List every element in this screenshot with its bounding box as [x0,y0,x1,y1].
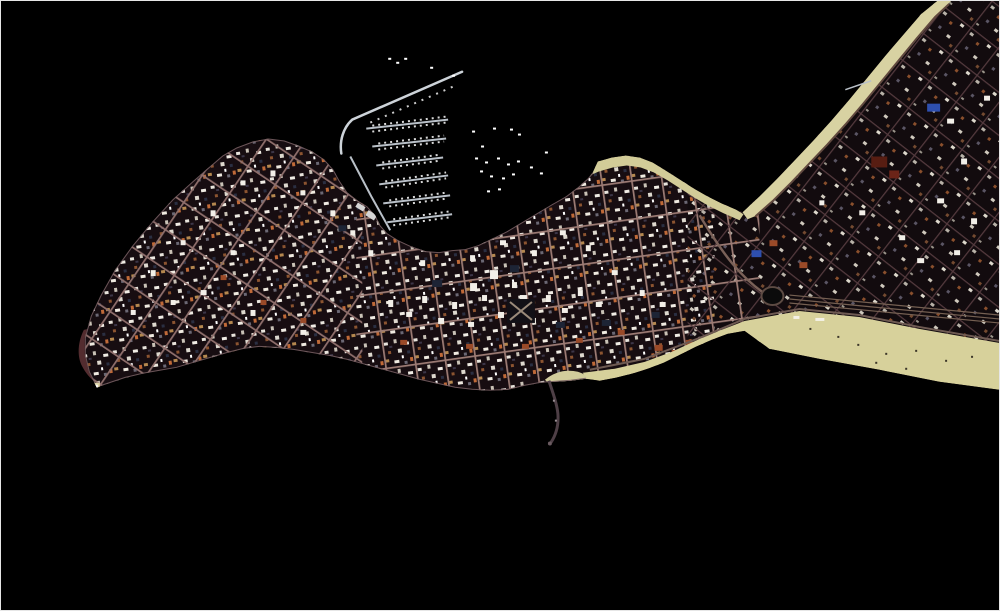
blue-roof-mainland [927,104,940,112]
plaza [507,299,535,323]
roundabout [761,287,783,305]
blue-roof-neck [751,250,761,257]
dark-red-roof [871,156,887,167]
dark-red-roof-2 [889,170,899,178]
satellite-scene [1,1,999,610]
spit-tip [548,442,552,446]
satellite-image [0,0,1000,611]
